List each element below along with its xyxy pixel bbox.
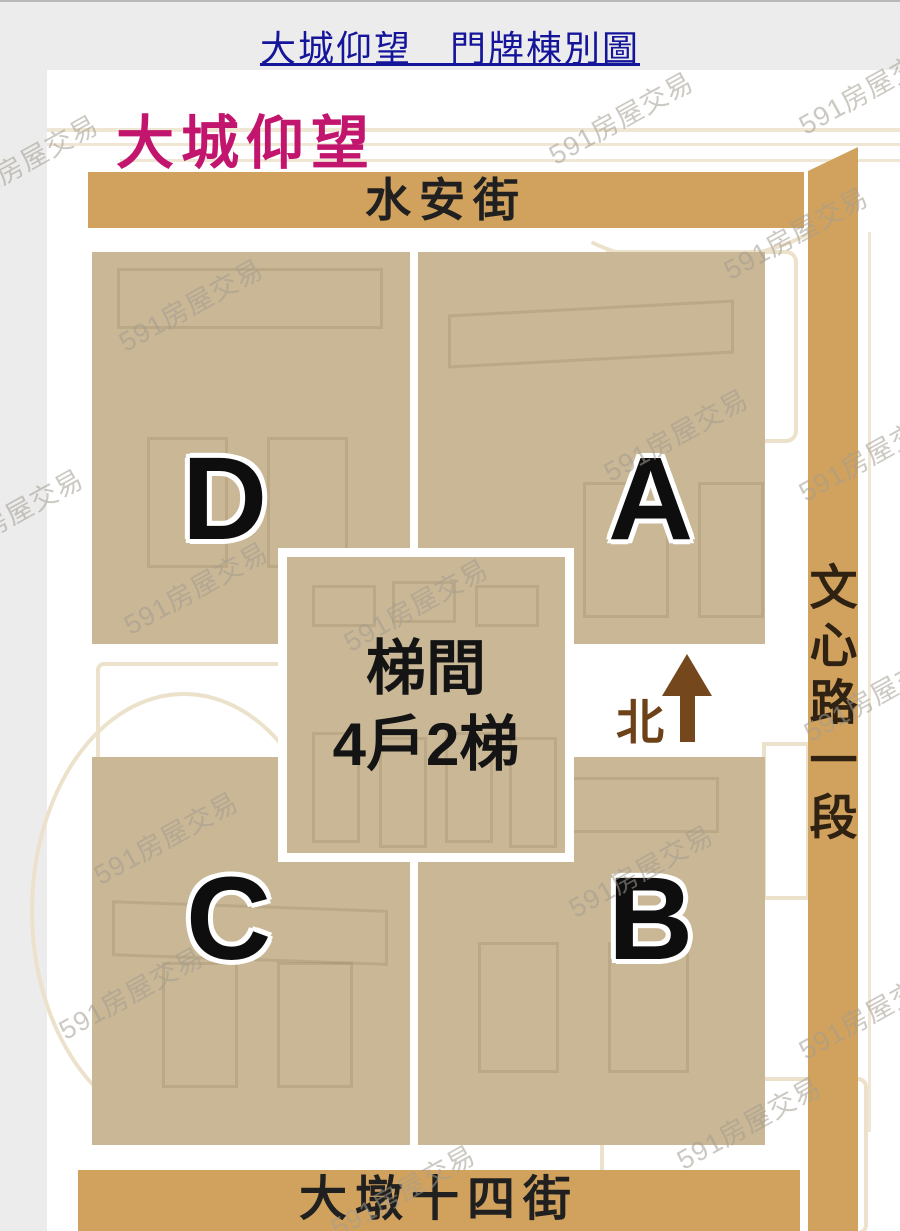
street-dadun: 大墩十四街 [78,1170,800,1231]
block-window-outline [698,482,764,618]
north-arrow-shaft [680,692,695,742]
block-letter-d: D [182,440,267,558]
road-wenxin-char: 文 [809,565,857,613]
project-title: 大城仰望 [116,96,376,180]
block-window-outline [277,962,353,1088]
block-letter-b: B [608,860,693,978]
stairwell-unit: 梯間 4戶2梯 [278,548,574,862]
north-label: 北 [616,700,664,748]
block-letter-a: A [608,440,693,558]
stairwell-fill: 梯間 4戶2梯 [287,557,565,853]
stairwell-units-label: 4戶2梯 [287,715,565,775]
block-window-outline [312,585,376,627]
page-header: 大城仰望 門牌棟別圖 [0,2,900,70]
block-window-outline [478,942,559,1073]
street-dadun-label: 大墩十四街 [78,1170,800,1230]
block-letter-c: C [186,860,271,978]
road-wenxin-char: 路 [809,680,857,728]
stairwell-label: 梯間 [287,639,565,699]
page-title: 大城仰望 門牌棟別圖 [0,20,900,72]
road-wenxin-char: 心 [809,623,857,671]
road-wenxin-char: 段 [809,795,857,843]
road-wenxin-label: 文 心 路 一 段 [805,565,862,843]
street-shuian-label: 水安街 [88,172,804,228]
street-shuian: 水安街 [88,172,804,228]
block-window-outline [475,585,539,627]
road-wenxin-char: 一 [809,738,857,786]
block-window-outline [117,268,383,329]
block-window-outline [448,300,734,369]
block-window-outline [392,581,456,623]
north-arrow-icon [662,654,712,696]
building-plan-page: 大城仰望 門牌棟別圖 大城仰望 水安街 文 心 路 一 段 328號-5 328… [0,0,900,1231]
